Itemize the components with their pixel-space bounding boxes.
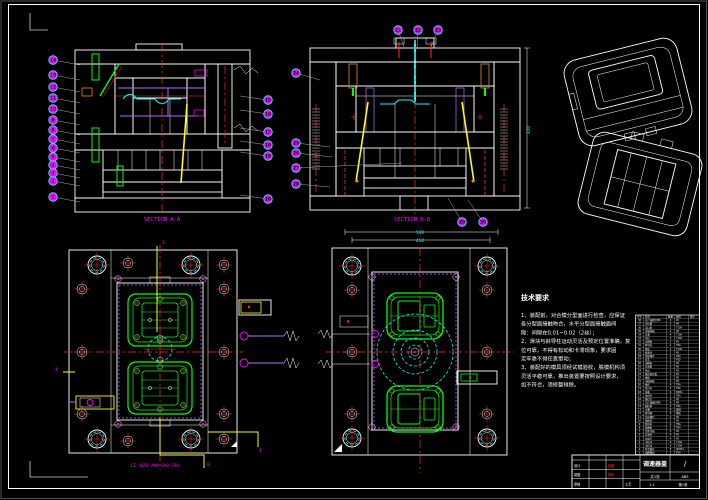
corner-mark: [334, 444, 342, 452]
slider: [340, 316, 368, 327]
slider-block: [82, 88, 92, 96]
bom-cell: 动模座板: [645, 379, 655, 383]
bom-cell: 1: [670, 341, 672, 344]
bom-cell: 27: [638, 359, 642, 362]
bom-cell: P20: [676, 355, 681, 358]
bom-cell: 1: [639, 452, 641, 455]
bom-cell: 45: [676, 416, 680, 419]
balloon-number: 17: [265, 130, 271, 136]
bom-cell: 4: [670, 444, 672, 447]
bom-cell: 35: [638, 330, 642, 333]
balloon-number: 16: [265, 112, 271, 118]
bom-cell: 7: [639, 430, 641, 433]
bom-cell: T10A: [676, 333, 683, 336]
bom-row: 18弹簧465Mn: [638, 390, 683, 394]
bom-row: 30滑块2T10A: [638, 347, 683, 351]
bom-cell: 45: [676, 351, 680, 354]
balloon-number: 11: [50, 96, 56, 102]
balloon-number: 30: [480, 220, 486, 226]
bom-cell: 内六角螺钉M8: [645, 318, 661, 322]
ejector-pin: [462, 102, 474, 182]
bom-cell: 21: [638, 380, 642, 383]
bom-row: 15内六角螺钉M6645: [638, 401, 680, 405]
bom-cell: 24: [638, 369, 642, 372]
bom-cell: 1: [670, 394, 672, 397]
balloon-number: 15: [265, 98, 271, 104]
bom-cell: 22: [638, 376, 642, 379]
bom-cell: 2: [670, 359, 672, 362]
bom-cell: 45: [676, 434, 680, 437]
balloon-number: 23: [435, 28, 441, 34]
trace-label: 描图: [608, 463, 614, 468]
bom-cell: 32: [638, 341, 642, 344]
bom-cell: 2: [670, 430, 672, 433]
balloon-callout: 30: [468, 200, 487, 226]
bom-cell: 中托司: [645, 440, 653, 444]
balloon-callout: 26: [292, 149, 332, 158]
bom-cell: 34: [638, 333, 642, 336]
bom-cell: 45: [676, 398, 680, 401]
bom-cell: 序号: [637, 315, 642, 319]
tech-req-line: 位可靠，不得有松动和卡滞现象，要求固: [521, 346, 616, 354]
bom-cell: 65Mn: [676, 391, 683, 394]
bom-cell: 锁模块: [645, 418, 653, 422]
balloon-number: 29: [459, 220, 465, 226]
bom-cell: P20: [676, 359, 681, 362]
leader-number: 8: [207, 462, 210, 467]
bom-cell: 圆柱销: [645, 404, 653, 408]
bom-cell: 推杆: [645, 383, 650, 387]
bom-cell: 定距拉板: [645, 429, 655, 433]
bom-cell: 支承柱: [645, 433, 653, 437]
bom-row: 34导套4T10A: [638, 332, 683, 336]
bom-cell: T8A: [676, 384, 681, 387]
bom-row: 32定模板145: [638, 340, 680, 344]
bom-cell: 36: [638, 326, 642, 329]
bom-cell: 15: [638, 402, 642, 405]
bom-cell: 橡胶: [676, 411, 681, 415]
bom-cell: 2: [670, 369, 672, 372]
bom-cell: 37: [638, 323, 642, 326]
bom-cell: 水嘴: [645, 408, 650, 412]
bom-row: 10锁模块245: [638, 418, 680, 422]
tech-req-line: 各分型面接触吻合，水平分型面接触面间: [521, 320, 616, 328]
screw: [349, 64, 357, 88]
bom-row: 35定模座板145: [638, 329, 680, 333]
section-b-b-view: 320 SECTION B-B: [310, 36, 532, 223]
runner-line: [118, 88, 205, 116]
balloon-number: 19: [265, 154, 271, 160]
balloon-callout: 19: [240, 152, 272, 161]
title-block: 设计 制图 审核 描图 描校 工艺 调速器盖 / 共1张 ABS 1:1 第1张: [572, 455, 700, 489]
bom-row: 7定距拉板245: [639, 429, 680, 433]
bom-cell: 名称: [645, 315, 650, 319]
bom-cell: 材料: [676, 315, 681, 319]
balloon-number: 1: [51, 195, 54, 201]
corner-mark: [231, 441, 237, 447]
bom-cell: 耐磨板: [645, 426, 653, 430]
plan-view-fixed-half: 540 450: [318, 229, 514, 473]
bom-cell: 45: [676, 373, 680, 376]
bom-cell: 19: [638, 387, 642, 390]
bom-cell: T8A: [676, 394, 681, 397]
bom-cell: 型芯: [645, 358, 650, 362]
bom-cell: 5: [639, 437, 641, 440]
bom-cell: 4: [670, 398, 672, 401]
bom-cell: 17: [638, 394, 642, 397]
bom-cell: 动模镶块: [645, 451, 655, 455]
bom-cell: 18: [638, 391, 642, 394]
bom-cell: T8A: [676, 387, 681, 390]
balloon-number: 12: [50, 85, 56, 91]
tech-requirements: 技术要求 1、装配前，对合模分型面进行检查，应保证各分型面接触吻合，水平分型面接…: [521, 293, 631, 389]
bom-cell: T10A: [676, 326, 683, 329]
bom-cell: 1: [670, 362, 672, 365]
plan-view-moving-half: 3 8 4 4 CI-4050-A90-B90-C90: [55, 240, 299, 470]
bom-cell: T10A: [676, 441, 683, 444]
bom-cell: 23: [638, 373, 642, 376]
bom-cell: 1: [670, 326, 672, 329]
bom-cell: 限位钉: [645, 397, 653, 401]
bom-cell: 11: [638, 416, 642, 419]
tech-req-line: 2、滑块与斜导柱运动灵活及预定位置准确，复: [521, 337, 631, 345]
bom-cell: 25: [638, 366, 642, 369]
spring-symbol: [234, 66, 258, 74]
bom-row: 25支承板145: [638, 365, 680, 369]
bom-cell: 2: [670, 344, 672, 347]
bom-cell: 45: [676, 341, 680, 344]
angle-pin: [100, 64, 119, 96]
bom-cell: 备注: [690, 315, 695, 319]
bom-cell: 黄铜: [676, 408, 681, 412]
balloon-number: 4: [51, 163, 54, 169]
scale-value: /: [684, 460, 687, 468]
bom-cell: 45: [676, 437, 680, 440]
bom-cell: 复位杆: [645, 386, 653, 390]
balloon-number: 7: [51, 137, 54, 143]
balloon-number: 2: [51, 179, 54, 185]
balloon-number: 21: [395, 28, 401, 34]
bom-cell: 4: [670, 437, 672, 440]
plan-caption: CI-4050-A90-B90-C90: [131, 463, 179, 468]
draw-label: 制图: [574, 472, 580, 477]
bom-cell: 29: [638, 351, 642, 354]
bom-cell: 30: [638, 348, 642, 351]
bom-cell: 26: [638, 362, 642, 365]
bom-cell: 斜顶杆: [645, 422, 653, 426]
bom-row: 26动模板145: [638, 361, 680, 365]
bom-cell: 45: [676, 323, 680, 326]
bom-cell: 45: [676, 430, 680, 433]
ejector-pin: [356, 102, 368, 182]
corner-trim-mark: [30, 13, 48, 30]
spring-symbol: [318, 360, 333, 368]
bom-cell: 4: [670, 441, 672, 444]
bom-cell: 45: [676, 402, 680, 405]
balloon-number: 20: [265, 197, 271, 203]
bom-row: 23推杆固定板145: [638, 372, 680, 376]
bom-cell: 内六角螺钉M6: [645, 401, 661, 405]
bom-cell: T8A: [676, 344, 681, 347]
bom-row: 22推板145: [638, 375, 680, 379]
bom-cell: 4: [670, 319, 672, 322]
tech-req-line: 1、装配前，对合模分型面进行检查，应保证: [521, 311, 626, 319]
bom-cell: 10: [638, 419, 642, 422]
bom-cell: 吊环螺钉: [645, 415, 655, 419]
bom-cell: 垃圾钉: [645, 436, 653, 440]
check-label: 审核: [574, 481, 581, 486]
balloon-callout: 28: [292, 180, 330, 189]
bom-cell: 2: [639, 448, 641, 451]
balloon-callout: 27: [292, 163, 402, 172]
balloon-number: 6: [51, 146, 54, 152]
bom-cell: 28: [638, 355, 642, 358]
bom-cell: P20: [676, 452, 681, 455]
bom-cell: 38: [638, 319, 642, 322]
tech-req-line: 隙：间隙在0.01~0.02（2丝）；: [521, 328, 597, 336]
bom-cell: 8: [670, 412, 672, 415]
bom-row: 4中托司4T10A: [639, 440, 683, 444]
bom-cell: 6: [639, 434, 641, 437]
bom-cell: 4: [670, 387, 672, 390]
bom-cell: 拉料杆: [645, 393, 653, 397]
count-label: 共1张: [650, 474, 660, 479]
bom-cell: 1: [670, 366, 672, 369]
spring-symbol: [284, 331, 299, 341]
part-name: 调速器盖: [643, 460, 667, 468]
bom-cell: 1: [670, 330, 672, 333]
balloon-callout: 20: [240, 195, 272, 204]
balloon-callout: 16: [240, 110, 272, 119]
bom-cell: 定模座板: [645, 329, 655, 333]
bom-cell: 6: [670, 402, 672, 405]
cavity-insert: [387, 293, 443, 339]
cad-drawing-canvas: SECTION A-A 320 SECTION B-B: [0, 0, 708, 500]
spring-symbol: [284, 358, 299, 368]
leader-number: 4: [259, 448, 262, 453]
bom-cell: SKH51: [676, 448, 684, 451]
bom-cell: 定模板: [645, 340, 653, 344]
bom-cell: 型腔镶件: [645, 354, 655, 358]
runner: [208, 432, 258, 447]
bom-cell: 推杆固定板: [645, 372, 658, 376]
bom-cell: 中托边: [645, 443, 653, 447]
bom-cell: 1: [670, 380, 672, 383]
bom-cell: 14: [638, 405, 642, 408]
bom-cell: 45: [676, 366, 680, 369]
bom-cell: 8: [639, 427, 641, 430]
balloon-callout: 29: [448, 198, 466, 226]
bom-cell: 楔紧块: [645, 350, 653, 354]
bom-row: 36浇口套1T10A: [638, 325, 683, 329]
leader-number: 4: [55, 367, 58, 372]
bom-cell: 密封圈: [645, 411, 653, 415]
spring-symbol: [318, 330, 333, 338]
bom-cell: 1: [670, 323, 672, 326]
bom-cell: 定位圈: [645, 322, 653, 326]
balloon-number: 9: [51, 118, 54, 124]
bom-cell: T10A: [676, 348, 683, 351]
bom-cell: 45: [676, 330, 680, 333]
bom-row: 24垫块245: [638, 368, 680, 372]
bom-cell: T8A: [676, 427, 681, 430]
balloon-number: 14: [50, 58, 56, 64]
bom-cell: T8A: [676, 423, 681, 426]
dim-top-1: 540: [416, 230, 424, 235]
spring-symbol: [234, 124, 258, 132]
bom-cell: 1: [670, 376, 672, 379]
screw: [481, 64, 489, 88]
runner: [160, 418, 204, 468]
bom-cell: 导柱: [645, 336, 650, 340]
design-label: 设计: [574, 463, 581, 468]
bom-cell: 2: [670, 348, 672, 351]
bom-cell: 型芯镶针: [645, 447, 655, 451]
balloon-number: 22: [415, 28, 421, 34]
balloon-number: 25: [293, 141, 299, 147]
bom-cell: 2: [670, 419, 672, 422]
bom-cell: 2: [670, 452, 672, 455]
balloon-number: 18: [265, 143, 271, 149]
bom-cell: 8: [670, 448, 672, 451]
section-a-label: SECTION A-A: [144, 217, 181, 223]
dim-right-b: 320: [526, 126, 532, 135]
bom-cell: T8A: [676, 405, 681, 408]
bom-cell: 8: [670, 409, 672, 412]
bom-cell: 45: [676, 319, 680, 322]
bom-cell: 浇口套: [645, 325, 653, 329]
bom-cell: 16: [638, 398, 642, 401]
bom-cell: 斜导柱: [645, 343, 653, 347]
ratio-value: 1:1: [649, 483, 654, 487]
bom-row: 16限位钉445: [638, 397, 680, 401]
bom-cell: 45: [676, 380, 680, 383]
bom-cell: 12: [638, 412, 642, 415]
balloon-number: 3: [51, 171, 54, 177]
balloon-callout: 18: [240, 141, 272, 150]
part-profile-line: [380, 100, 430, 104]
bom-cell: 2: [670, 416, 672, 419]
leader-number: 3: [162, 240, 165, 245]
tech-req-title: 技术要求: [521, 293, 550, 302]
bom-cell: 2: [670, 355, 672, 358]
tech-req-line: 定牢靠不得任意窜动；: [521, 355, 574, 363]
section-a-a-view: SECTION A-A: [75, 44, 258, 223]
tech-req-line: 灵活平稳可靠，推出装置要按照设计要求，: [521, 372, 622, 380]
bom-row: 5垃圾钉445: [639, 436, 680, 440]
material-value: ABS: [681, 475, 689, 479]
bom-cell: 4: [670, 333, 672, 336]
corner-trim-mark: [30, 461, 88, 477]
bom-cell: 31: [638, 344, 642, 347]
bom-cell: 数量: [668, 315, 673, 319]
balloon-number: 8: [51, 128, 54, 134]
bom-cell: 45: [676, 419, 680, 422]
bom-row: 6支承柱445: [639, 433, 680, 437]
bom-cell: 2: [670, 423, 672, 426]
bom-cell: 33: [638, 337, 642, 340]
bom-row: 13水嘴8黄铜: [638, 408, 681, 412]
trace-check-label: 描校: [608, 472, 615, 477]
bom-cell: 2: [670, 351, 672, 354]
bom-cell: 导套: [645, 332, 650, 336]
balloon-callout: 25: [292, 139, 330, 148]
bom-cell: 弹簧: [645, 390, 650, 394]
cavity-insert: [387, 386, 443, 432]
process-label: 工艺: [625, 481, 631, 486]
bom-row: 33导柱4T10A: [638, 336, 683, 340]
bom-row: 11吊环螺钉245: [638, 415, 680, 419]
balloon-number: 26: [293, 151, 299, 157]
bom-row: 37定位圈145: [638, 322, 680, 326]
balloon-number: 5: [51, 155, 54, 161]
bom-cell: 3: [639, 444, 641, 447]
balloon-callout: 15: [240, 96, 272, 105]
bom-cell: 垫块: [645, 368, 650, 372]
screw: [92, 128, 99, 162]
bom-row: 3中托边4T10A: [639, 443, 683, 447]
bom-cell: 9: [639, 423, 641, 426]
bom-row: 29楔紧块245: [638, 350, 680, 354]
bom-cell: 4: [670, 434, 672, 437]
bom-cell: 20: [638, 384, 642, 387]
bom-cell: 45: [676, 376, 680, 379]
balloon-number: 24: [293, 71, 299, 77]
bom-cell: 支承板: [645, 365, 653, 369]
balloon-callout: 24: [292, 69, 320, 80]
bom-cell: 动模板: [645, 361, 653, 365]
part-iso-view-bottom: [576, 123, 707, 238]
bom-cell: 45: [676, 369, 680, 372]
bom-row: 38内六角螺钉M8445: [638, 318, 680, 322]
bom-cell: 13: [638, 409, 642, 412]
bom-cell: 滑块: [645, 347, 650, 351]
screw: [92, 54, 99, 80]
balloon-number: 27: [293, 166, 299, 172]
bom-row: 2型芯镶针8SKH51: [639, 447, 685, 451]
bom-cell: 4: [670, 391, 672, 394]
balloon-number: 28: [293, 182, 299, 188]
bom-cell: 1: [670, 373, 672, 376]
bom-cell: T10A: [676, 337, 683, 340]
bom-cell: T10A: [676, 444, 683, 447]
sheet-label: 第1张: [679, 482, 689, 487]
part-iso-view-top: [561, 35, 696, 151]
bom-cell: 8: [670, 384, 672, 387]
section-b-label: SECTION B-B: [394, 217, 431, 223]
bom-cell: 4: [670, 337, 672, 340]
tech-req-line: 如不符合，须修整排除。: [521, 381, 579, 389]
bom-cell: 推板: [645, 375, 650, 379]
balloon-callout: 17: [240, 128, 272, 137]
balloon-number: 13: [50, 73, 56, 79]
tech-req-line: 3、装配好的模具须经试模验收，脱模机构须: [521, 363, 626, 371]
bom-cell: 4: [639, 441, 641, 444]
dim-top-2: 450: [416, 238, 424, 243]
balloon-number: 10: [50, 107, 56, 113]
bom-table: 序号名称数量材料备注38内六角螺钉M844537定位圈14536浇口套1T10A…: [636, 315, 700, 455]
bom-cell: 45: [676, 362, 680, 365]
bom-row: 12密封圈8橡胶: [638, 411, 681, 415]
bom-row: 21动模座板145: [638, 379, 680, 383]
bom-cell: 2: [670, 427, 672, 430]
bom-cell: 4: [670, 405, 672, 408]
